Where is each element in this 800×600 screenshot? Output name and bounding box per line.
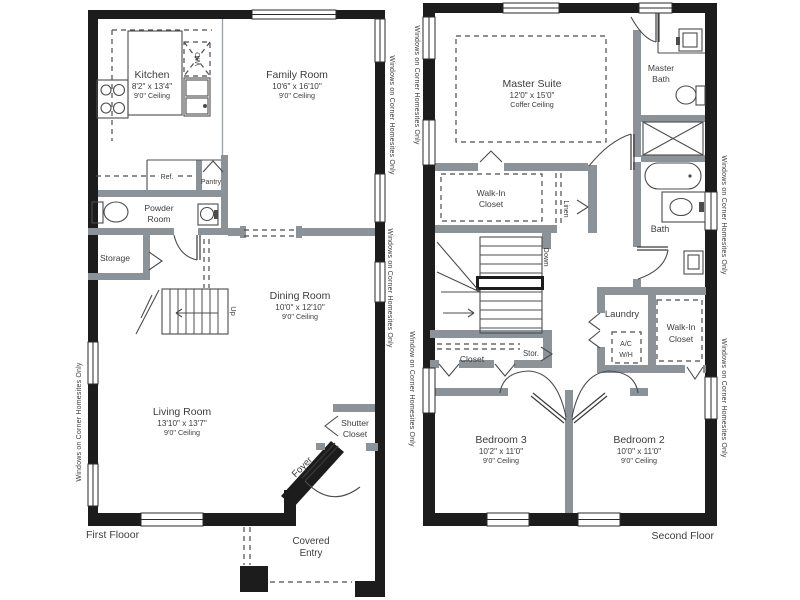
sf-window-note-left-1: Windows on Corner Homesites Only <box>413 25 420 145</box>
bedroom3-dims: 10'2" x 11'0" <box>479 447 523 456</box>
shutter-closet-label-1: Shutter <box>341 418 369 428</box>
dining-room-dims: 10'0" x 12'10" <box>275 303 325 312</box>
bedroom2-dims: 10'0" x 11'0" <box>617 447 661 456</box>
window <box>639 3 672 13</box>
faucet-icon <box>699 202 704 212</box>
faucet-icon <box>214 210 218 219</box>
linen-label: Linen <box>562 200 569 217</box>
window <box>705 192 717 230</box>
ref-label: Ref. <box>161 174 174 181</box>
wh-label: W/H <box>619 352 633 359</box>
bedroom3-label: Bedroom 3 <box>475 434 527 446</box>
window <box>487 513 529 526</box>
covered-entry-label-1: Covered <box>292 536 329 547</box>
stair-rail-inner <box>479 279 541 287</box>
living-room-dims: 13'10" x 13'7" <box>157 419 207 428</box>
master-suite-dims: 12'0" x 15'0" <box>510 91 555 100</box>
window <box>88 464 98 506</box>
living-room-label: Living Room <box>153 406 212 418</box>
closet-label: Closet <box>460 354 485 364</box>
window <box>252 10 336 19</box>
second-floor-title: Second Floor <box>652 530 715 542</box>
master-suite-ceiling: Coffer Ceiling <box>510 100 553 109</box>
wic-right-label-1: Walk-In <box>667 322 696 332</box>
first-floor-title: First Flooor <box>86 529 140 541</box>
dining-room-label: Dining Room <box>270 290 331 302</box>
kitchen-dims: 8'2" x 13'4" <box>132 82 172 91</box>
wic-right-label-2: Closet <box>669 334 694 344</box>
bedroom2-ceiling: 9'0" Ceiling <box>621 456 657 465</box>
window <box>423 120 435 165</box>
shutter-closet-label-2: Closet <box>343 429 368 439</box>
pantry-label: Pantry <box>201 179 222 186</box>
window <box>375 262 385 302</box>
master-suite-label: Master Suite <box>503 78 562 90</box>
ff-window-note-left: Windows on Corner Homesites Only <box>76 362 83 482</box>
ac-label: A/C <box>620 341 632 348</box>
powder-room-label-1: Powder <box>144 203 173 213</box>
storage-label: Storage <box>100 253 130 263</box>
window <box>88 342 98 384</box>
ff-window-note-right-1: Windows on Corner Homesites Only <box>388 55 395 175</box>
bedroom3-ceiling: 9'0" Ceiling <box>483 456 519 465</box>
dining-room-ceiling: 9'0" Ceiling <box>282 312 318 321</box>
sf-window-note-right-1: Windows on Corner Homesites Only <box>720 155 727 275</box>
ff-window-note-right-2: Windows on Corner Homesites Only <box>386 228 393 348</box>
family-room-dims: 10'6" x 16'10" <box>272 82 322 91</box>
faucet-icon <box>203 104 207 108</box>
family-room-ceiling: 9'0" Ceiling <box>279 91 315 100</box>
wd-label: W/D <box>195 52 202 66</box>
stor-label: Stor. <box>523 349 539 358</box>
master-bath-label-1: Master <box>648 63 674 73</box>
covered-entry-label-2: Entry <box>300 548 323 559</box>
window <box>503 3 559 13</box>
window <box>423 17 435 59</box>
down-label: Down <box>542 247 551 266</box>
wic-left-label-2: Closet <box>479 199 504 209</box>
bath-label: Bath <box>651 224 670 234</box>
living-room-ceiling: 9'0" Ceiling <box>164 428 200 437</box>
kitchen-label: Kitchen <box>134 69 169 81</box>
powder-room-label-2: Room <box>148 214 171 224</box>
floorplan-svg: Kitchen 8'2" x 13'4" 9'0" Ceiling Family… <box>0 0 800 600</box>
window <box>578 513 620 526</box>
family-room-label: Family Room <box>266 69 328 81</box>
kitchen-ceiling: 9'0" Ceiling <box>134 91 170 100</box>
up-label: Up <box>229 306 238 316</box>
window <box>705 377 717 419</box>
laundry-label: Laundry <box>605 309 640 320</box>
ff-entry-post-left <box>240 566 268 592</box>
tub-drain-icon <box>688 174 691 177</box>
ff-entry-post-right <box>355 581 385 597</box>
sf-window-note-left-2: Window on Corner Homesites Only <box>408 331 415 447</box>
window <box>375 174 385 222</box>
faucet-icon <box>676 37 680 45</box>
window <box>141 513 203 526</box>
floorplan-canvas: Kitchen 8'2" x 13'4" 9'0" Ceiling Family… <box>0 0 800 600</box>
window <box>375 19 385 62</box>
sf-window-note-right-2: Windows on Corner Homesites Only <box>720 338 727 458</box>
bedroom2-label: Bedroom 2 <box>613 434 665 446</box>
window <box>423 368 435 413</box>
master-bath-label-2: Bath <box>652 74 670 84</box>
wic-left-label-1: Walk-In <box>477 188 506 198</box>
